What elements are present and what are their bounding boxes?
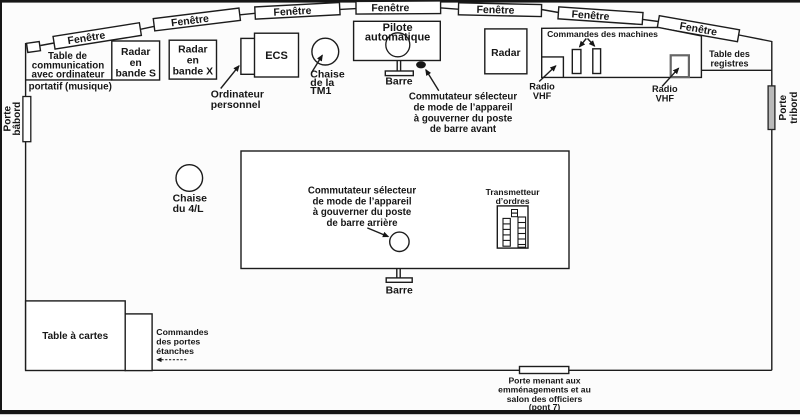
svg-text:VHF: VHF	[533, 91, 552, 101]
svg-text:Radio: Radio	[652, 84, 678, 94]
svg-text:Commandes des machines: Commandes des machines	[547, 29, 658, 39]
svg-text:des portes: des portes	[156, 336, 200, 346]
svg-text:à gouverner du poste: à gouverner du poste	[414, 113, 513, 124]
svg-text:Table à cartes: Table à cartes	[42, 331, 108, 342]
svg-text:TM1: TM1	[310, 85, 331, 97]
svg-text:Fenêtre: Fenêtre	[571, 8, 610, 23]
svg-text:Ordinateur: Ordinateur	[211, 90, 264, 101]
svg-text:Porte: Porte	[778, 94, 789, 120]
svg-text:personnel: personnel	[211, 100, 261, 111]
svg-text:Fenêtre: Fenêtre	[371, 2, 409, 14]
svg-text:bande X: bande X	[173, 66, 213, 77]
svg-text:Radar: Radar	[121, 47, 150, 58]
svg-text:de mode de l’appareil: de mode de l’appareil	[312, 196, 411, 207]
svg-text:du 4/L: du 4/L	[173, 203, 205, 215]
svg-text:Radar: Radar	[178, 45, 207, 56]
svg-text:de barre arrière: de barre arrière	[326, 218, 398, 229]
svg-text:d’ordres: d’ordres	[496, 196, 530, 206]
svg-text:Commutateur sélecteur: Commutateur sélecteur	[308, 185, 416, 196]
svg-text:Radio: Radio	[529, 81, 555, 91]
svg-text:bâbord: bâbord	[12, 102, 23, 136]
svg-text:VHF: VHF	[656, 94, 675, 104]
svg-text:bande S: bande S	[115, 68, 155, 79]
svg-text:avec ordinateur: avec ordinateur	[32, 69, 105, 80]
svg-text:en: en	[187, 56, 199, 67]
svg-text:ECS: ECS	[265, 50, 288, 62]
svg-text:Commandes: Commandes	[156, 327, 208, 337]
svg-text:Radar: Radar	[491, 48, 520, 59]
svg-text:Commutateur sélecteur: Commutateur sélecteur	[409, 92, 517, 103]
svg-text:de mode de l’appareil: de mode de l’appareil	[413, 102, 512, 113]
svg-text:à gouverner du poste: à gouverner du poste	[313, 207, 412, 218]
svg-text:étanches: étanches	[156, 346, 194, 356]
svg-text:Fenêtre: Fenêtre	[476, 4, 514, 17]
svg-text:Fenêtre: Fenêtre	[273, 5, 312, 19]
svg-text:(pont 7): (pont 7)	[529, 402, 561, 412]
svg-text:en: en	[130, 58, 142, 69]
svg-text:registres: registres	[710, 59, 748, 69]
svg-text:de barre avant: de barre avant	[430, 124, 497, 135]
svg-text:portatif (musique): portatif (musique)	[29, 82, 112, 93]
svg-text:Barre: Barre	[386, 285, 413, 296]
svg-text:tribord: tribord	[789, 92, 800, 124]
svg-text:Barre: Barre	[385, 76, 412, 87]
